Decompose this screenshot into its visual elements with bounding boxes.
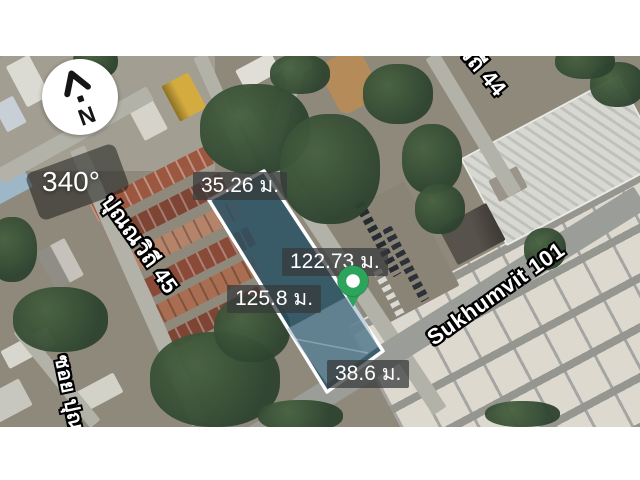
compass-needle-icon: N (42, 59, 118, 135)
compass-rose[interactable]: N (42, 59, 118, 135)
measurement-bottom: 38.6 ม. (327, 360, 409, 388)
screenshot-stage: Sukhumvit 101 ปุณณวิถี 45 ปุณณวิถี 44 ซอ… (0, 0, 640, 480)
bearing-readout: 340° (42, 166, 100, 198)
pin-center-dot (346, 274, 360, 288)
measurement-top: 35.26 ม. (193, 172, 287, 200)
place-marker-pin[interactable] (333, 264, 373, 310)
compass-north-label: N (75, 101, 100, 131)
measurement-left: 125.8 ม. (227, 285, 321, 313)
